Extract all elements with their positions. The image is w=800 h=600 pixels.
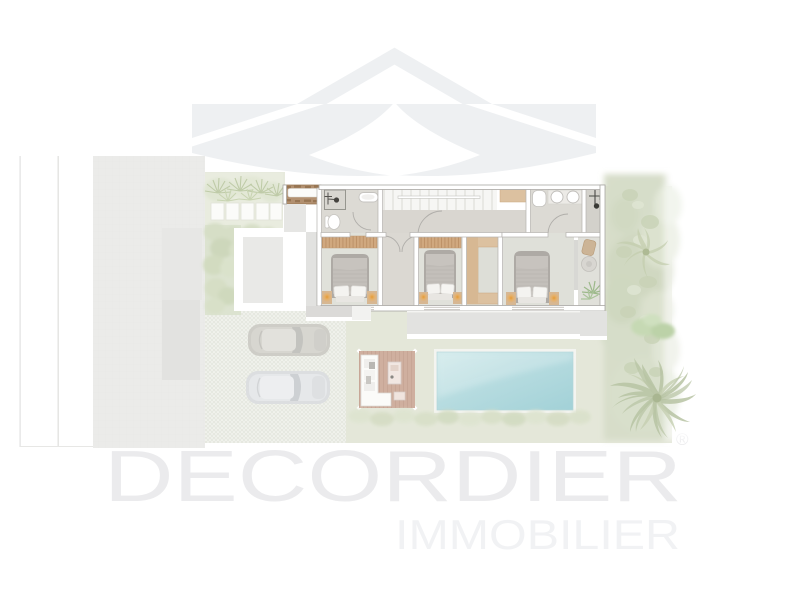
svg-text:DECORDIER: DECORDIER [104,437,682,517]
svg-text:IMMOBILIER: IMMOBILIER [395,511,680,558]
